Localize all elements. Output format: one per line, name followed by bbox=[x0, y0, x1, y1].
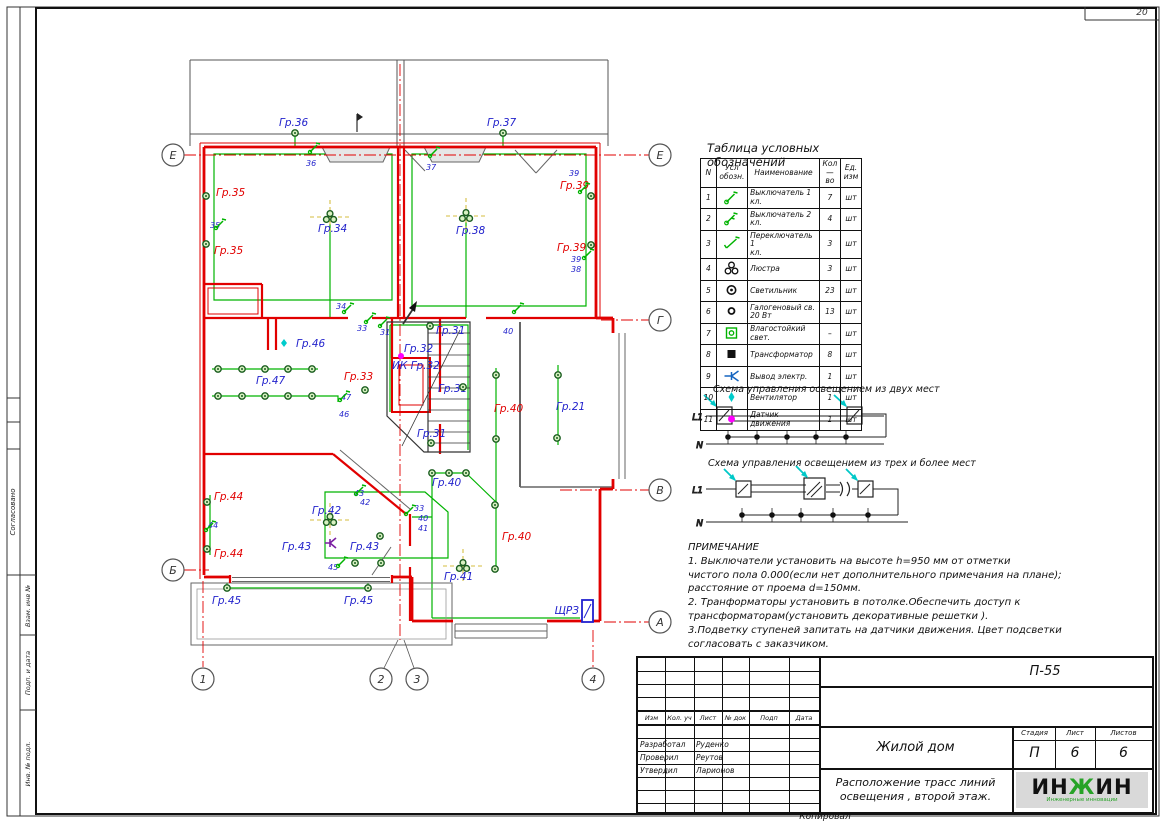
legend-row-number: 11 bbox=[701, 409, 717, 431]
legend-row-number: 2 bbox=[701, 209, 717, 231]
sidebar-label-agreed: Согласовано bbox=[9, 482, 17, 542]
legend-row-name: Датчик движения bbox=[748, 409, 820, 431]
transformer-icon bbox=[716, 345, 747, 367]
plan-group-label: Гр.32 bbox=[404, 343, 434, 355]
legend-row-unit: шт bbox=[840, 259, 861, 281]
plan-group-label: Гр.34 bbox=[318, 223, 347, 235]
lamp-icon bbox=[311, 368, 313, 370]
tb-col-doc: № док bbox=[722, 714, 749, 722]
lamp-icon bbox=[494, 568, 496, 570]
legend-row-qty: – bbox=[819, 323, 840, 345]
plan-circuit-number: 34 bbox=[336, 302, 346, 311]
lamp-icon bbox=[206, 548, 208, 550]
lamp-icon bbox=[287, 395, 289, 397]
legend-row-qty: 3 bbox=[819, 259, 840, 281]
plan-group-label: Гр.44 bbox=[214, 491, 243, 503]
plan-circuit-number: 39 bbox=[571, 255, 581, 264]
lamp-icon bbox=[502, 132, 504, 134]
tb-name-approved: Ларионов bbox=[696, 766, 748, 775]
lamp-icon bbox=[205, 195, 207, 197]
legend-row-qty: 23 bbox=[819, 280, 840, 302]
lamp-icon bbox=[590, 244, 592, 246]
legend-row-unit: шт bbox=[840, 345, 861, 367]
lamp-icon bbox=[241, 395, 243, 397]
lamp-icon bbox=[430, 442, 432, 444]
plan-group-label: Гр.21 bbox=[556, 401, 585, 413]
legend-row-name: Влагостойкий свет. bbox=[748, 323, 820, 345]
tb-sheet-title-1: Расположение трасс линий bbox=[819, 776, 1012, 789]
lamp-icon bbox=[590, 195, 592, 197]
tb-sheet-value: 6 bbox=[1055, 745, 1095, 761]
scheme-three-places: L1 N Схема управления освещением из трех… bbox=[692, 458, 976, 529]
legend-row: 9Вывод электр.1шт bbox=[701, 366, 862, 388]
plan-group-label: Гр.39 bbox=[557, 242, 587, 254]
legend-row-name: Вывод электр. bbox=[748, 366, 820, 388]
plan-circuit-number: 40 bbox=[503, 327, 513, 336]
note-line: 1. Выключатели установить на высоте h=95… bbox=[688, 555, 1080, 569]
lamp-icon bbox=[264, 395, 266, 397]
legend-col-name: Наименование bbox=[748, 159, 820, 188]
switch-1-icon bbox=[716, 187, 747, 209]
plan-circuit-number: 41 bbox=[418, 524, 428, 533]
plan-group-label: Гр.41 bbox=[444, 571, 473, 583]
legend-row-unit: шт bbox=[840, 323, 861, 345]
legend-row-number: 7 bbox=[701, 323, 717, 345]
legend-row-qty: 13 bbox=[819, 302, 840, 324]
legend-table: NУсл обозн.НаименованиеКол — воЕд. изм1В… bbox=[700, 158, 862, 431]
legend-row-number: 8 bbox=[701, 345, 717, 367]
chandelier-icon bbox=[331, 217, 337, 223]
legend-row: 6Галогеновый св. 20 Вт13шт bbox=[701, 302, 862, 324]
drawing-sheet: ЩРЗ L1 N Схема управления освещением из … bbox=[0, 0, 1166, 823]
plan-group-label: Гр.31 bbox=[436, 325, 465, 337]
switch-2-icon bbox=[716, 209, 747, 231]
copied-label: Копировал bbox=[780, 812, 870, 822]
lamp-icon bbox=[431, 472, 433, 474]
legend-row-number: 10 bbox=[701, 388, 717, 410]
legend-row-number: 5 bbox=[701, 280, 717, 302]
lamp-icon bbox=[462, 386, 464, 388]
legend-row-name: Трансформатор bbox=[748, 345, 820, 367]
legend-row-number: 3 bbox=[701, 230, 717, 259]
lamp-icon bbox=[241, 368, 243, 370]
plan-group-label: Гр.43 bbox=[350, 541, 379, 553]
chandelier-icon bbox=[324, 520, 330, 526]
legend-row-number: 1 bbox=[701, 187, 717, 209]
fan-icon bbox=[716, 388, 747, 410]
plan-circuit-number: 36 bbox=[306, 159, 316, 168]
notes-block: ПРИМЕЧАНИЕ 1. Выключатели установить на … bbox=[688, 541, 1080, 651]
axis-marker-label: Б bbox=[169, 564, 177, 577]
chandelier-icon bbox=[457, 566, 463, 572]
legend-row-number: 9 bbox=[701, 366, 717, 388]
note-line: согласовать с заказчиком. bbox=[688, 638, 1080, 652]
lamp-icon bbox=[495, 438, 497, 440]
lamp-icon bbox=[380, 562, 382, 564]
plan-circuit-number: 33 bbox=[357, 324, 367, 333]
lamp-icon bbox=[311, 395, 313, 397]
lamp-icon bbox=[287, 368, 289, 370]
sheet-corner-number: 20 bbox=[1130, 8, 1154, 18]
legend-row-number: 6 bbox=[701, 302, 717, 324]
plan-group-label: Гр.33 bbox=[344, 371, 373, 383]
plan-group-label: Гр.35 bbox=[214, 245, 244, 257]
tb-name-developed: Руденко bbox=[696, 740, 748, 749]
tb-doc-code: П-55 bbox=[938, 664, 1152, 679]
scheme1-n-label: N bbox=[696, 441, 703, 451]
lamp-icon bbox=[448, 472, 450, 474]
plan-circuit-number: 38 bbox=[571, 265, 581, 274]
motion-sensor-icon bbox=[398, 353, 404, 359]
axis-marker-label: Е bbox=[170, 149, 177, 162]
plan-circuit-number: 40 bbox=[418, 514, 428, 523]
plan-group-label: Гр.43 bbox=[282, 541, 311, 553]
sidebar-label-podp: Подп. и дата bbox=[24, 645, 32, 701]
chandelier-icon bbox=[327, 514, 333, 520]
legend-row-qty: 8 bbox=[819, 345, 840, 367]
lamp-icon bbox=[217, 368, 219, 370]
legend-col-n: N bbox=[701, 159, 717, 188]
axis-marker-label: 3 bbox=[414, 673, 421, 686]
plan-group-label: Гр.35 bbox=[216, 187, 246, 199]
legend-row-qty: 1 bbox=[819, 388, 840, 410]
motion-icon bbox=[716, 409, 747, 431]
sidebar-label-vzam: Взам. инв № bbox=[24, 578, 32, 634]
sidebar-label-inv: Инв. № подл. bbox=[24, 736, 32, 792]
legend-row-qty: 4 bbox=[819, 209, 840, 231]
lamp-icon bbox=[294, 132, 296, 134]
legend-row: 3Переключатель 1 кл.3шт bbox=[701, 230, 862, 259]
chandelier-icon bbox=[460, 560, 466, 566]
legend-row: 2Выключатель 2 кл.4шт bbox=[701, 209, 862, 231]
plan-group-label: Гр.40 bbox=[432, 477, 462, 489]
legend-row: 1Выключатель 1 кл.7шт bbox=[701, 187, 862, 209]
tb-role-checked: Проверил bbox=[640, 753, 694, 762]
tb-role-approved: Утвердил bbox=[640, 766, 694, 775]
plan-circuit-number: 31 bbox=[380, 328, 390, 337]
lamp-icon bbox=[495, 374, 497, 376]
legend-row-unit: шт bbox=[840, 388, 861, 410]
legend-row: 5Светильник23шт bbox=[701, 280, 862, 302]
lamp-icon bbox=[264, 368, 266, 370]
axis-marker-label: Е bbox=[657, 149, 664, 162]
scheme2-n-label: N bbox=[696, 519, 703, 529]
note-line: 2. Транформаторы установить в потолке.Об… bbox=[688, 596, 1080, 610]
tb-role-developed: Разработал bbox=[640, 740, 694, 749]
axis-marker-label: 4 bbox=[590, 673, 597, 686]
legend-row-qty: 7 bbox=[819, 187, 840, 209]
tb-sheet-label: Лист bbox=[1055, 729, 1095, 737]
legend-row-name: Люстра bbox=[748, 259, 820, 281]
facade-lines bbox=[190, 60, 608, 146]
note-line: расстояние от проема d=150мм. bbox=[688, 582, 1080, 596]
legend-row-name: Выключатель 2 кл. bbox=[748, 209, 820, 231]
legend-row-unit: шт bbox=[840, 409, 861, 431]
tb-sheets-value: 6 bbox=[1095, 745, 1152, 761]
chandelier-icon bbox=[327, 211, 333, 217]
legend-row-unit: шт bbox=[840, 187, 861, 209]
lamp-icon bbox=[367, 587, 369, 589]
axis-marker-label: 2 bbox=[378, 673, 385, 686]
legend-row-unit: шт bbox=[840, 366, 861, 388]
tb-project-name: Жилой дом bbox=[819, 740, 1012, 755]
tb-col-data: Дата bbox=[789, 714, 819, 722]
legend-row: 7Влагостойкий свет.–шт bbox=[701, 323, 862, 345]
lamp-icon bbox=[364, 389, 366, 391]
panel-label: ЩРЗ bbox=[554, 605, 579, 617]
legend-row: 10Вентилятор1шт bbox=[701, 388, 862, 410]
chandelier-icon bbox=[464, 566, 470, 572]
plan-circuit-number: 46 bbox=[339, 410, 349, 419]
note-line: чистого пола 0.000(если нет дополнительн… bbox=[688, 569, 1080, 583]
company-logo-text: ИНЖИН bbox=[1031, 777, 1132, 797]
title-block: Изм Кол. уч Лист № док Подп Дата Разрабо… bbox=[636, 656, 1154, 814]
plan-group-label: Гр.46 bbox=[296, 338, 326, 350]
note-line: 3.Подветку ступеней запитать на датчики … bbox=[688, 624, 1080, 638]
tb-col-podp: Подп bbox=[749, 714, 789, 722]
scheme2-l1-label: L1 bbox=[692, 486, 703, 496]
lamp-icon bbox=[206, 501, 208, 503]
tb-name-checked: Реутов bbox=[696, 753, 748, 762]
lamp-icon bbox=[465, 472, 467, 474]
halogen-icon bbox=[716, 302, 747, 324]
plan-group-label: Гр.44 bbox=[214, 548, 243, 560]
plan-group-label: Гр.45 bbox=[212, 595, 242, 607]
chandelier-icon bbox=[324, 217, 330, 223]
plan-group-label: Гр.47 bbox=[256, 375, 286, 387]
legend-row-unit: шт bbox=[840, 209, 861, 231]
legend-row-qty: 3 bbox=[819, 230, 840, 259]
axis-marker-label: В bbox=[656, 484, 664, 497]
legend-col-qty: Кол — во bbox=[819, 159, 840, 188]
legend-row-number: 4 bbox=[701, 259, 717, 281]
axis-marker-label: 1 bbox=[200, 673, 207, 686]
axis-marker-label: Г bbox=[657, 314, 664, 327]
legend-row: 8Трансформатор8шт bbox=[701, 345, 862, 367]
legend-row-qty: 1 bbox=[819, 366, 840, 388]
note-line: трансформаторам(установить декоративные … bbox=[688, 610, 1080, 624]
chandelier-icon bbox=[463, 210, 469, 216]
plan-group-label: Гр.38 bbox=[456, 225, 486, 237]
company-logo: ИНЖИН Инженерные инновации bbox=[1016, 772, 1148, 808]
lamp-icon bbox=[429, 325, 431, 327]
plan-group-label: Гр.40 bbox=[494, 403, 524, 415]
legend-row-unit: шт bbox=[840, 280, 861, 302]
scheme2-title: Схема управления освещением из трех и бо… bbox=[708, 458, 976, 469]
legend-row-name: Выключатель 1 кл. bbox=[748, 187, 820, 209]
plan-group-label: ИК Гр.32 bbox=[392, 360, 440, 372]
legend-row: 11Датчик движения1шт bbox=[701, 409, 862, 431]
legend-row-name: Переключатель 1 кл. bbox=[748, 230, 820, 259]
panel-schrz: ЩРЗ bbox=[554, 600, 593, 622]
legend-row-unit: шт bbox=[840, 302, 861, 324]
lamp-icon bbox=[716, 280, 747, 302]
plan-group-label: Гр.31 bbox=[417, 428, 446, 440]
chandelier-icon bbox=[331, 520, 337, 526]
legend-row: 4Люстра3шт bbox=[701, 259, 862, 281]
tb-stage-label: Стадия bbox=[1014, 729, 1055, 737]
legend-col-unit: Ед. изм bbox=[840, 159, 861, 188]
tb-col-izm: Изм bbox=[638, 714, 665, 722]
tb-col-kol: Кол. уч bbox=[665, 714, 694, 722]
lamp-icon bbox=[205, 243, 207, 245]
plan-group-label: Гр.40 bbox=[502, 531, 532, 543]
tb-sheets-label: Листов bbox=[1095, 729, 1152, 737]
tb-sheet-title-2: освещения , второй этаж. bbox=[819, 790, 1012, 803]
chandelier-icon bbox=[716, 259, 747, 281]
legend-row-unit: шт bbox=[840, 230, 861, 259]
lamp-icon bbox=[379, 535, 381, 537]
plan-group-label: Гр.37 bbox=[487, 117, 517, 129]
fan-icon bbox=[281, 339, 287, 347]
lamp-icon bbox=[556, 437, 558, 439]
outlet-icon bbox=[716, 366, 747, 388]
axis-marker-label: А bbox=[655, 616, 664, 629]
lamp-icon bbox=[217, 395, 219, 397]
electric-outlet-icon bbox=[325, 538, 336, 548]
plan-circuit-number: 39 bbox=[569, 169, 579, 178]
lamp-icon bbox=[494, 504, 496, 506]
chandelier-icon bbox=[460, 216, 466, 222]
moistproof-icon bbox=[716, 323, 747, 345]
plan-group-label: Гр.36 bbox=[279, 117, 309, 129]
lamp-icon bbox=[354, 562, 356, 564]
lamp-icon bbox=[226, 587, 228, 589]
legend-row-name: Галогеновый св. 20 Вт bbox=[748, 302, 820, 324]
chandelier-icon bbox=[467, 216, 473, 222]
tb-col-list: Лист bbox=[694, 714, 722, 722]
legend-row-name: Светильник bbox=[748, 280, 820, 302]
legend-col-symbol: Усл обозн. bbox=[716, 159, 747, 188]
legend-row-name: Вентилятор bbox=[748, 388, 820, 410]
plan-group-label: Гр.45 bbox=[344, 595, 374, 607]
notes-title: ПРИМЕЧАНИЕ bbox=[688, 541, 1080, 555]
tb-stage-value: П bbox=[1014, 745, 1055, 761]
plan-circuit-number: 37 bbox=[426, 163, 437, 172]
legend-row-qty: 1 bbox=[819, 409, 840, 431]
company-logo-subtext: Инженерные инновации bbox=[1046, 797, 1117, 803]
plan-circuit-number: 42 bbox=[360, 498, 370, 507]
changeover-icon bbox=[716, 230, 747, 259]
lamp-icon bbox=[557, 374, 559, 376]
